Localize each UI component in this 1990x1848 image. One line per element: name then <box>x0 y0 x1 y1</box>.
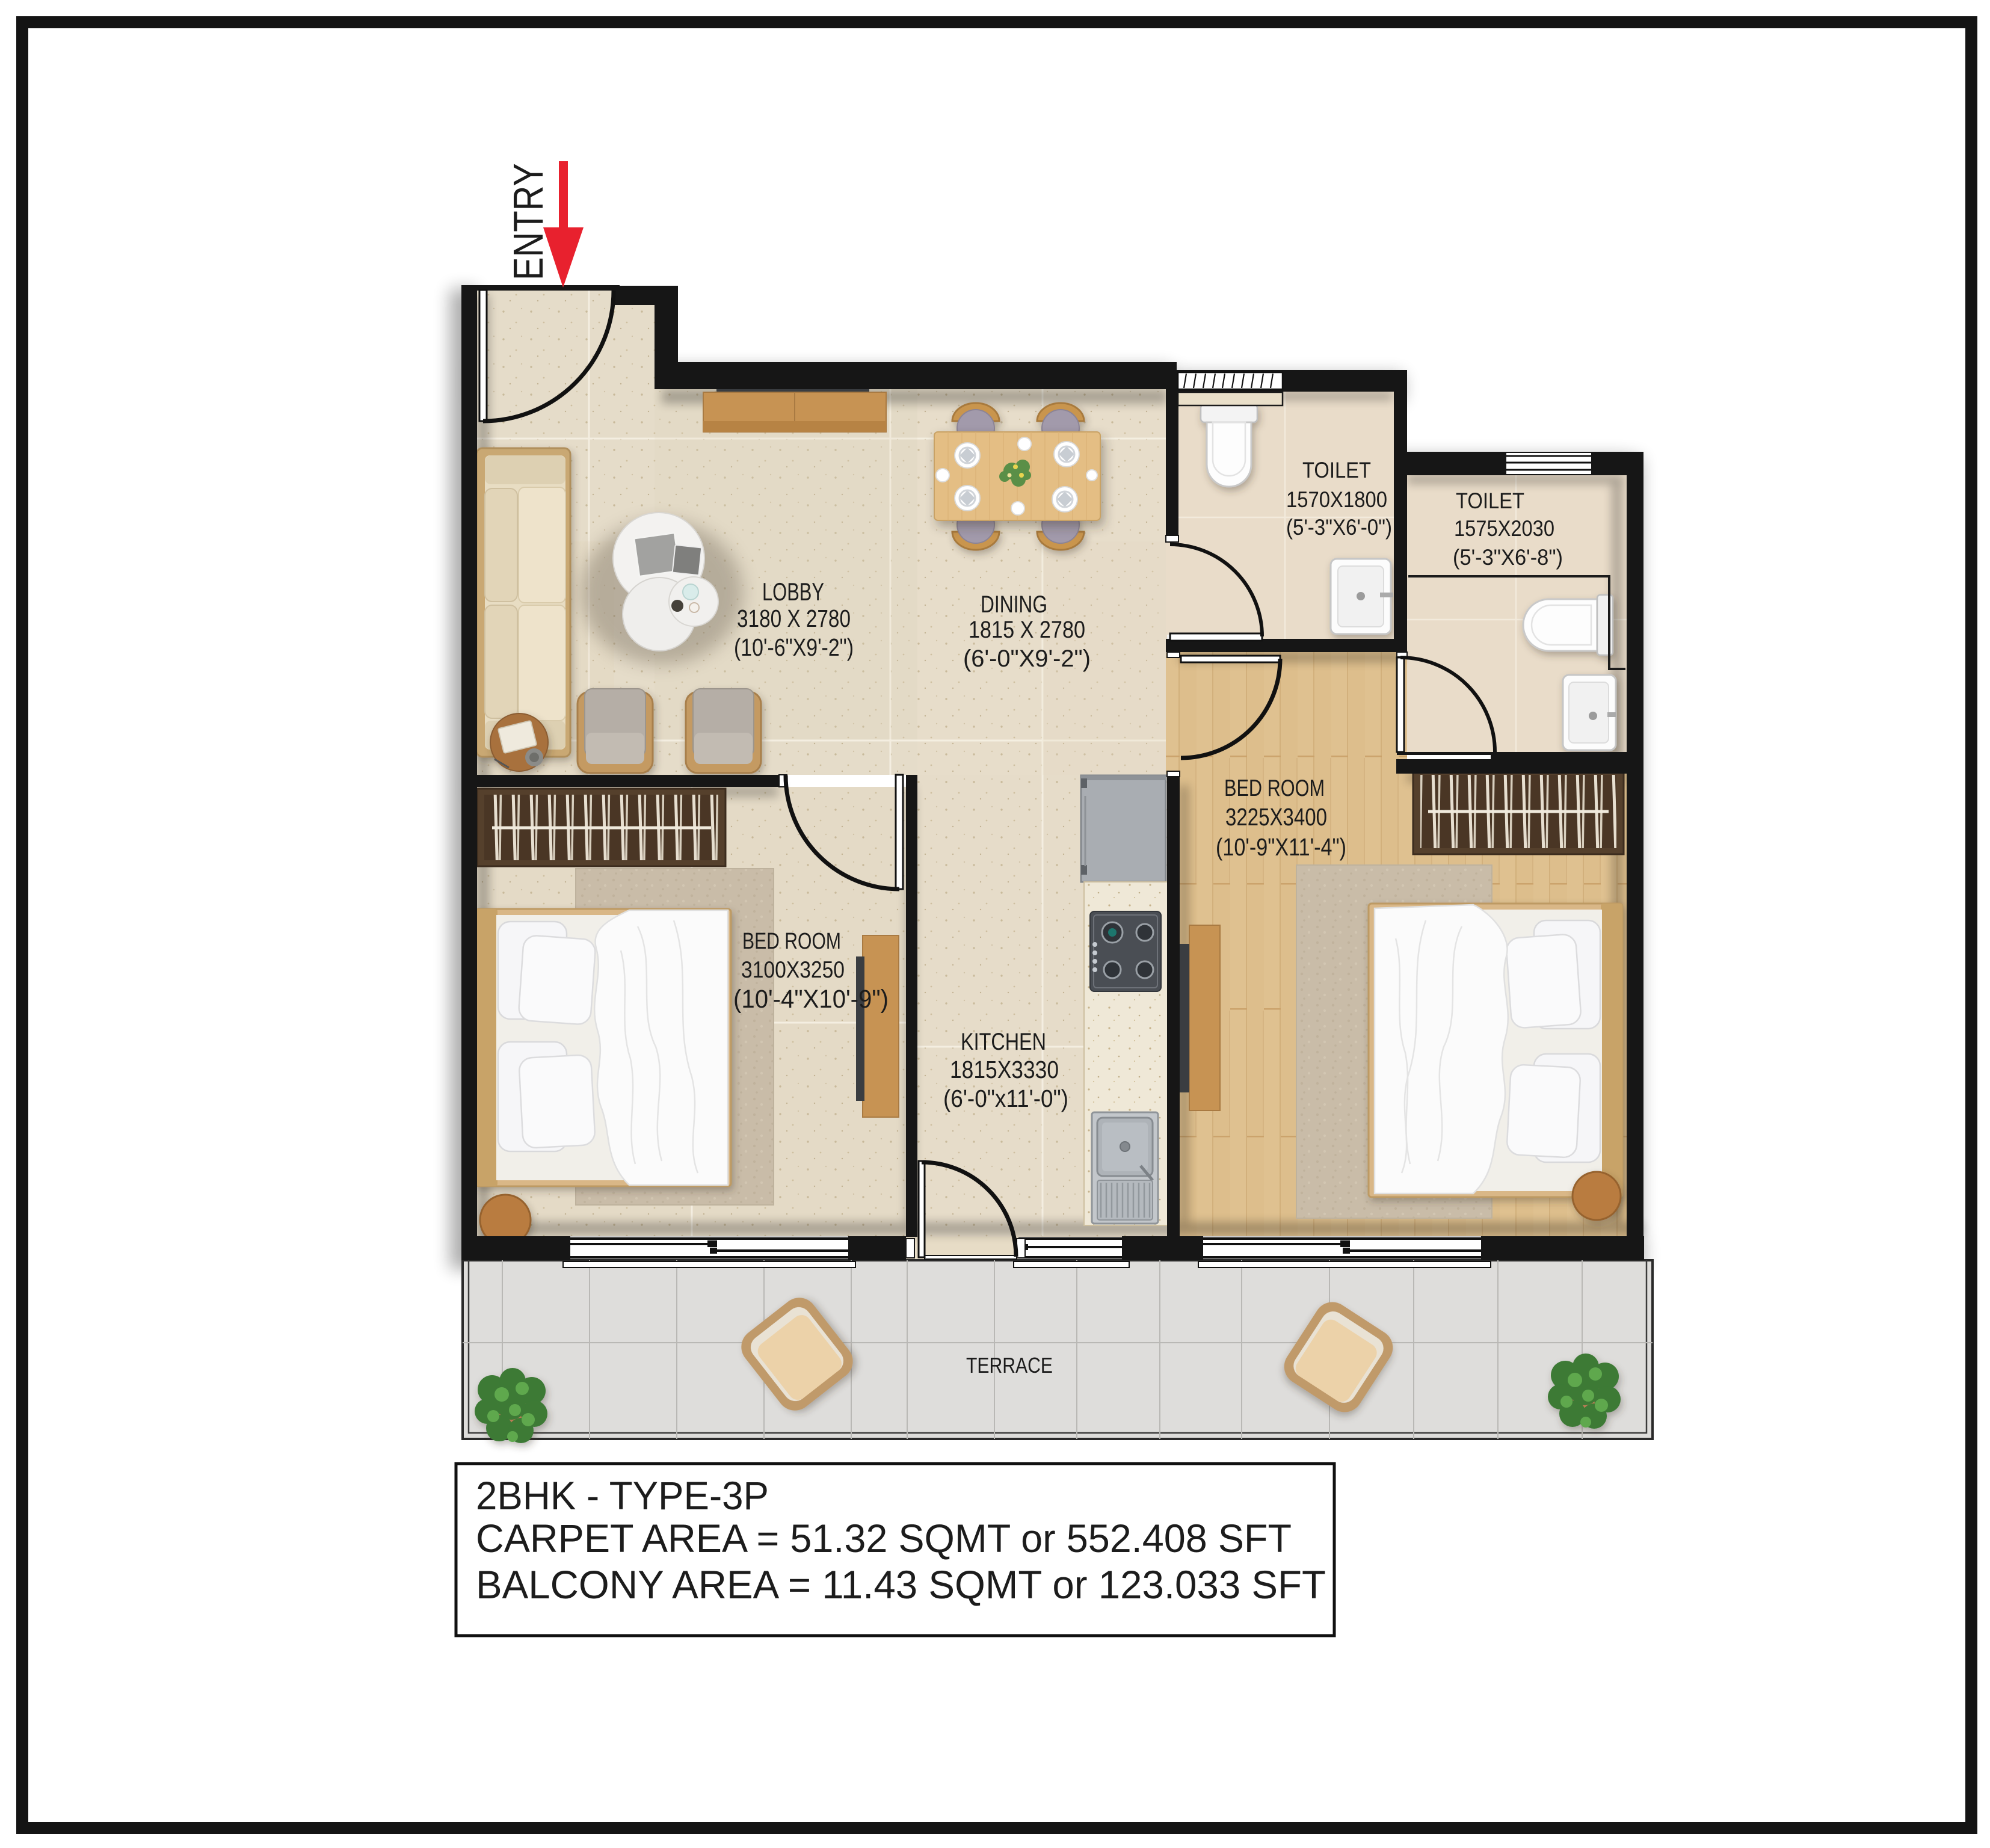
svg-text:3100X3250: 3100X3250 <box>741 957 845 983</box>
svg-text:3225X3400: 3225X3400 <box>1225 803 1327 831</box>
svg-text:CARPET AREA = 51.32 SQMT or 55: CARPET AREA = 51.32 SQMT or 552.408 SFT <box>476 1516 1292 1560</box>
svg-text:1815X3330: 1815X3330 <box>950 1056 1059 1083</box>
svg-text:(10'-6"X9'-2"): (10'-6"X9'-2") <box>734 633 854 661</box>
svg-text:BED ROOM: BED ROOM <box>742 929 841 954</box>
svg-text:ENTRY: ENTRY <box>505 163 552 280</box>
svg-text:1815 X 2780: 1815 X 2780 <box>969 617 1085 643</box>
svg-text:TOILET: TOILET <box>1302 458 1371 482</box>
svg-text:DINING: DINING <box>981 591 1047 618</box>
svg-text:KITCHEN: KITCHEN <box>961 1029 1046 1055</box>
svg-text:(5'-3"X6'-0"): (5'-3"X6'-0") <box>1286 515 1392 540</box>
svg-text:(6'-0"X9'-2"): (6'-0"X9'-2") <box>963 645 1091 672</box>
svg-text:TOILET: TOILET <box>1456 488 1524 513</box>
svg-text:TERRACE: TERRACE <box>966 1353 1053 1378</box>
svg-text:BED ROOM: BED ROOM <box>1224 775 1325 801</box>
svg-text:(6'-0"x11'-0"): (6'-0"x11'-0") <box>943 1085 1068 1112</box>
svg-text:(10'-4"X10'-9"): (10'-4"X10'-9") <box>733 985 889 1014</box>
svg-text:2BHK - TYPE-3P: 2BHK - TYPE-3P <box>476 1473 769 1518</box>
svg-text:3180 X 2780: 3180 X 2780 <box>737 605 851 632</box>
svg-text:(5'-3"X6'-8"): (5'-3"X6'-8") <box>1453 545 1563 570</box>
svg-text:1575X2030: 1575X2030 <box>1454 516 1554 541</box>
svg-text:BALCONY AREA = 11.43 SQMT or 1: BALCONY AREA = 11.43 SQMT or 123.033 SFT <box>476 1562 1326 1607</box>
svg-text:LOBBY: LOBBY <box>762 577 824 606</box>
svg-text:1570X1800: 1570X1800 <box>1286 487 1387 512</box>
svg-text:(10'-9"X11'-4"): (10'-9"X11'-4") <box>1216 833 1346 861</box>
